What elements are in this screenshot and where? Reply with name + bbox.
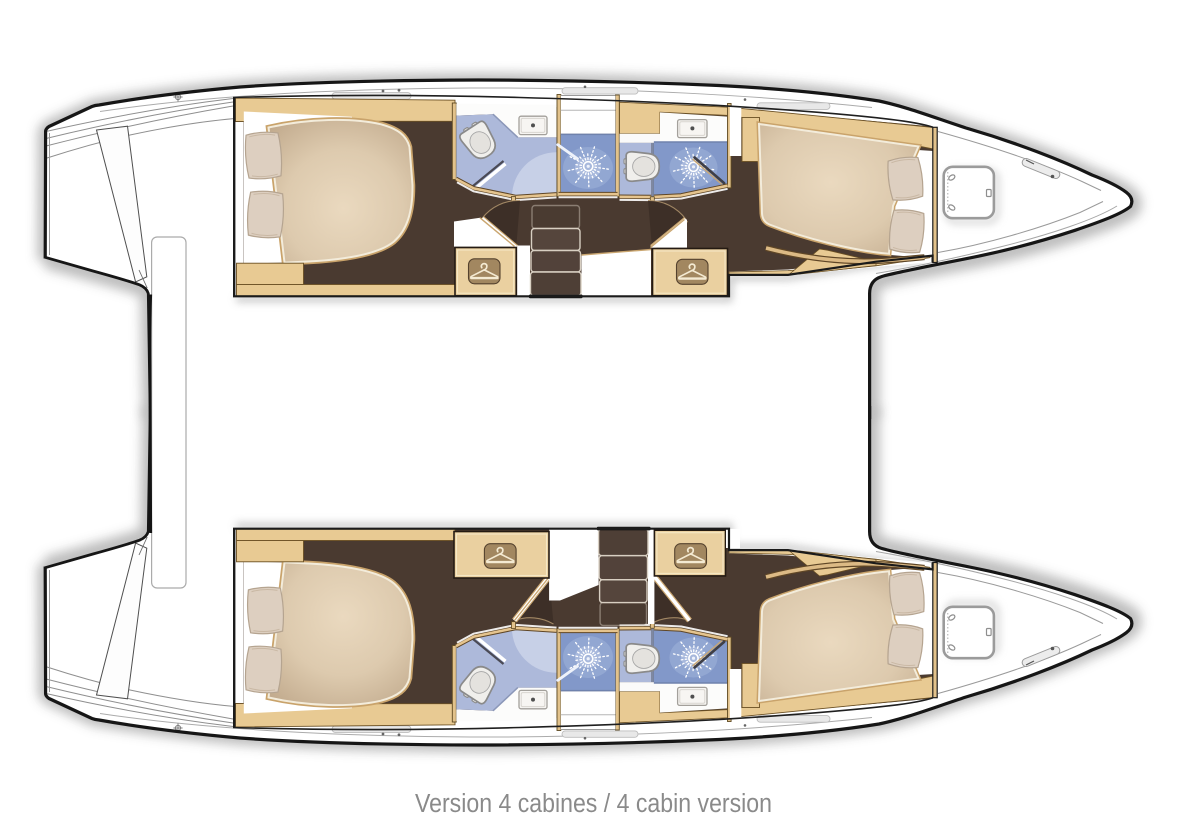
- svg-text:Version 4 cabines / 4 cabin ve: Version 4 cabines / 4 cabin version: [415, 790, 772, 818]
